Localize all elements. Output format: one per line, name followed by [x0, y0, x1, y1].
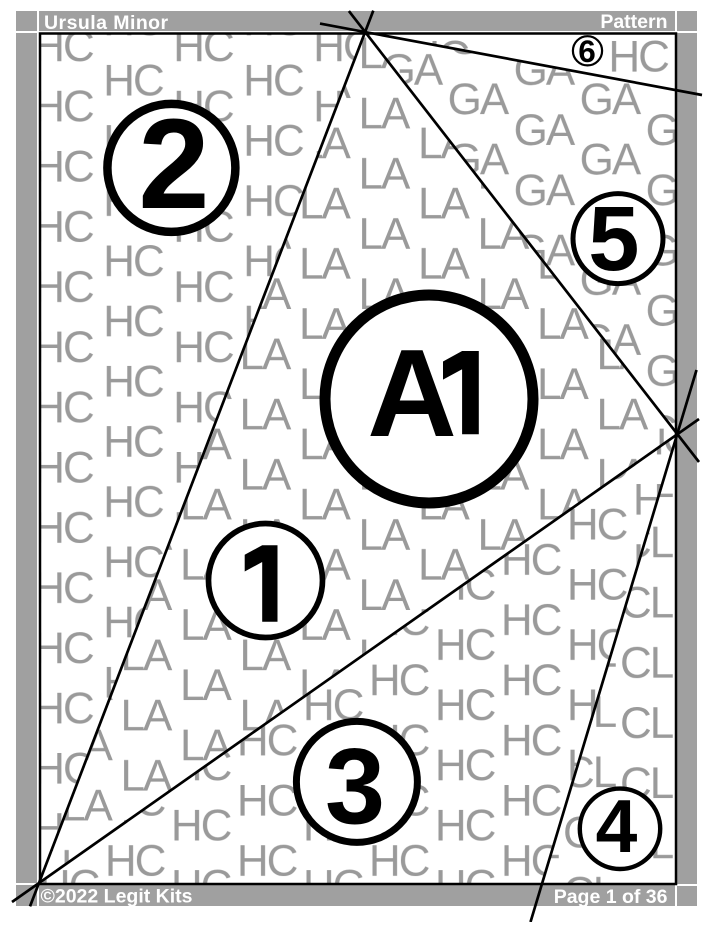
svg-text:5: 5 [588, 188, 639, 290]
svg-text:Page 1 of 36: Page 1 of 36 [554, 886, 668, 908]
svg-text:3: 3 [325, 726, 385, 847]
svg-text:6: 6 [578, 33, 596, 69]
svg-text:2: 2 [138, 93, 209, 236]
svg-text:A: A [367, 325, 457, 463]
svg-text:©2022 Legit Kits: ©2022 Legit Kits [41, 886, 193, 908]
svg-text:Ursula Minor: Ursula Minor [44, 12, 169, 34]
svg-text:4: 4 [596, 784, 638, 868]
svg-text:Pattern: Pattern [600, 11, 667, 33]
